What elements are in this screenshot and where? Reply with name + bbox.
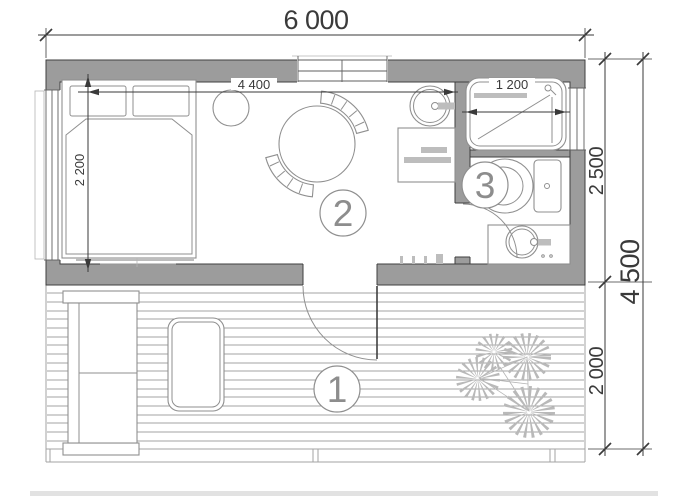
shower-bar (474, 93, 527, 98)
dim-interior-width-text: 4 400 (238, 77, 271, 92)
plant (466, 342, 543, 426)
kitchen-counter (398, 128, 455, 182)
main-door-swing (303, 286, 377, 360)
floor-plan: 1 2 3 6 000 4 400 (0, 0, 674, 502)
dim-bed-area-depth-text: 2 200 (72, 154, 87, 187)
label-bathroom: 3 (462, 162, 508, 208)
garden-sofa (63, 291, 139, 455)
bathroom-partition-stub (455, 257, 470, 264)
bedside-table (213, 90, 249, 126)
bathroom-door-opening (452, 203, 473, 257)
bed-footboard (76, 258, 194, 261)
dim-overall-depth: 4 500 (615, 52, 649, 456)
terrace-furniture (63, 291, 543, 455)
room-labels: 1 2 3 (314, 162, 508, 412)
threshold-ticks (400, 254, 443, 264)
scan-shadow (30, 491, 658, 496)
toilet-tank (534, 160, 561, 212)
dim-overall-width-text: 6 000 (283, 5, 348, 35)
dim-house-depth-text: 2 500 (586, 147, 608, 196)
sink-tap (438, 103, 455, 110)
main-door-opening (303, 262, 377, 286)
shower-partition-wall (470, 150, 570, 157)
label-main-room: 2 (320, 190, 366, 236)
label-terrace: 1 (314, 366, 360, 412)
dining-table (279, 106, 355, 182)
dim-overall-width: 6 000 (38, 5, 594, 58)
dining-set (266, 91, 368, 197)
basin-tap (531, 239, 538, 246)
label-bathroom-number: 3 (475, 165, 496, 206)
label-terrace-number: 1 (327, 369, 348, 410)
dim-shower-width-text: 1 200 (496, 77, 529, 92)
window-left (35, 90, 61, 260)
washbasin-group (488, 225, 570, 264)
window-top (292, 56, 392, 83)
kitchen-group (398, 86, 455, 182)
terrace-table (168, 318, 224, 411)
label-main-room-number: 2 (333, 193, 354, 234)
dim-overall-depth-text: 4 500 (615, 239, 645, 304)
dim-terrace-depth-text: 2 000 (586, 347, 608, 396)
window-bathroom-right (568, 88, 587, 150)
